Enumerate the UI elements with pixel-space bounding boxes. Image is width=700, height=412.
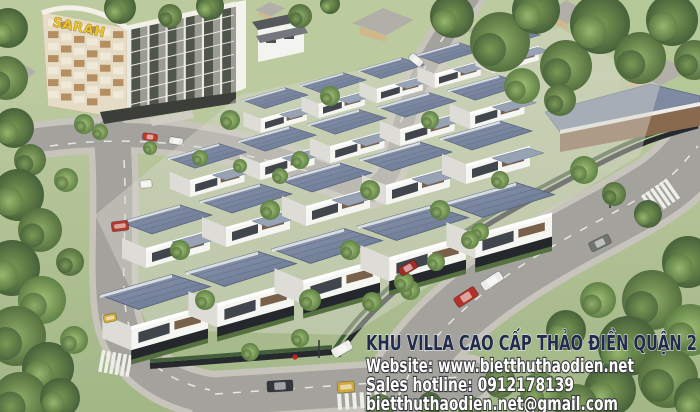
tree: [421, 111, 439, 129]
facade-slat: [48, 67, 59, 74]
tree: [220, 110, 240, 130]
facade-slat: [61, 94, 72, 101]
tree: [56, 248, 84, 276]
facade-slat: [113, 67, 124, 74]
tree: [427, 253, 445, 271]
tree: [602, 182, 626, 206]
car: [267, 380, 294, 392]
aerial-render: SARAH: [0, 0, 700, 412]
facade-slat: [74, 96, 85, 103]
tree: [291, 329, 309, 347]
tree: [233, 159, 247, 173]
tree: [260, 200, 280, 220]
tree: [634, 200, 662, 228]
facade-slat: [87, 98, 98, 105]
tree: [360, 180, 380, 200]
tree: [192, 150, 208, 166]
facade-slat: [113, 79, 124, 86]
tree: [504, 68, 540, 104]
tree: [491, 171, 509, 189]
villa-ad-image: SARAH: [0, 0, 700, 412]
facade-slat: [48, 55, 59, 62]
facade-slat: [61, 82, 72, 89]
facade-slat: [48, 91, 59, 98]
tree: [291, 151, 309, 169]
tree: [170, 240, 190, 260]
facade-slat: [48, 43, 59, 50]
overlay-email: bietthuthaodien.net@gmail.com: [366, 393, 618, 412]
facade-slat: [48, 31, 59, 38]
facade-slat: [61, 46, 72, 53]
facade-slat: [113, 91, 124, 98]
tree: [143, 141, 157, 155]
facade-slat: [74, 48, 85, 55]
facade-slat: [87, 74, 98, 81]
facade-slat: [100, 41, 111, 48]
tree: [461, 231, 479, 249]
facade-slat: [74, 84, 85, 91]
facade-slat: [87, 50, 98, 57]
facade-slat: [74, 72, 85, 79]
facade-slat: [113, 31, 124, 38]
overlay-title: KHU VILLA CAO CẤP THẢO ĐIỀN QUẬN 2: [366, 327, 697, 355]
facade-slat: [100, 53, 111, 60]
facade-slat: [113, 43, 124, 50]
facade-slat: [87, 62, 98, 69]
tree: [570, 156, 598, 184]
facade-slat: [74, 36, 85, 43]
tree: [272, 168, 288, 184]
facade-slat: [100, 89, 111, 96]
facade-slat: [87, 86, 98, 93]
facade-slat: [113, 55, 124, 62]
car: [140, 179, 153, 188]
tree: [241, 343, 259, 361]
tree: [362, 292, 382, 312]
car: [111, 220, 129, 232]
tree: [544, 84, 576, 116]
tree: [74, 114, 94, 134]
tree: [288, 4, 312, 28]
tree: [92, 124, 108, 140]
facade-slat: [61, 58, 72, 65]
fire-hydrant: [292, 354, 297, 359]
tree: [299, 289, 321, 311]
tree: [430, 200, 450, 220]
tree: [54, 168, 78, 192]
car: [337, 381, 355, 393]
tree: [580, 282, 616, 318]
facade-slat: [61, 34, 72, 41]
facade-slat: [48, 79, 59, 86]
tree: [340, 240, 360, 260]
tree: [195, 290, 215, 310]
tree: [320, 86, 340, 106]
tree: [158, 4, 182, 28]
facade-slat: [74, 60, 85, 67]
facade-slat: [61, 70, 72, 77]
tree: [60, 326, 88, 354]
facade-slat: [100, 77, 111, 84]
facade-slat: [100, 65, 111, 72]
